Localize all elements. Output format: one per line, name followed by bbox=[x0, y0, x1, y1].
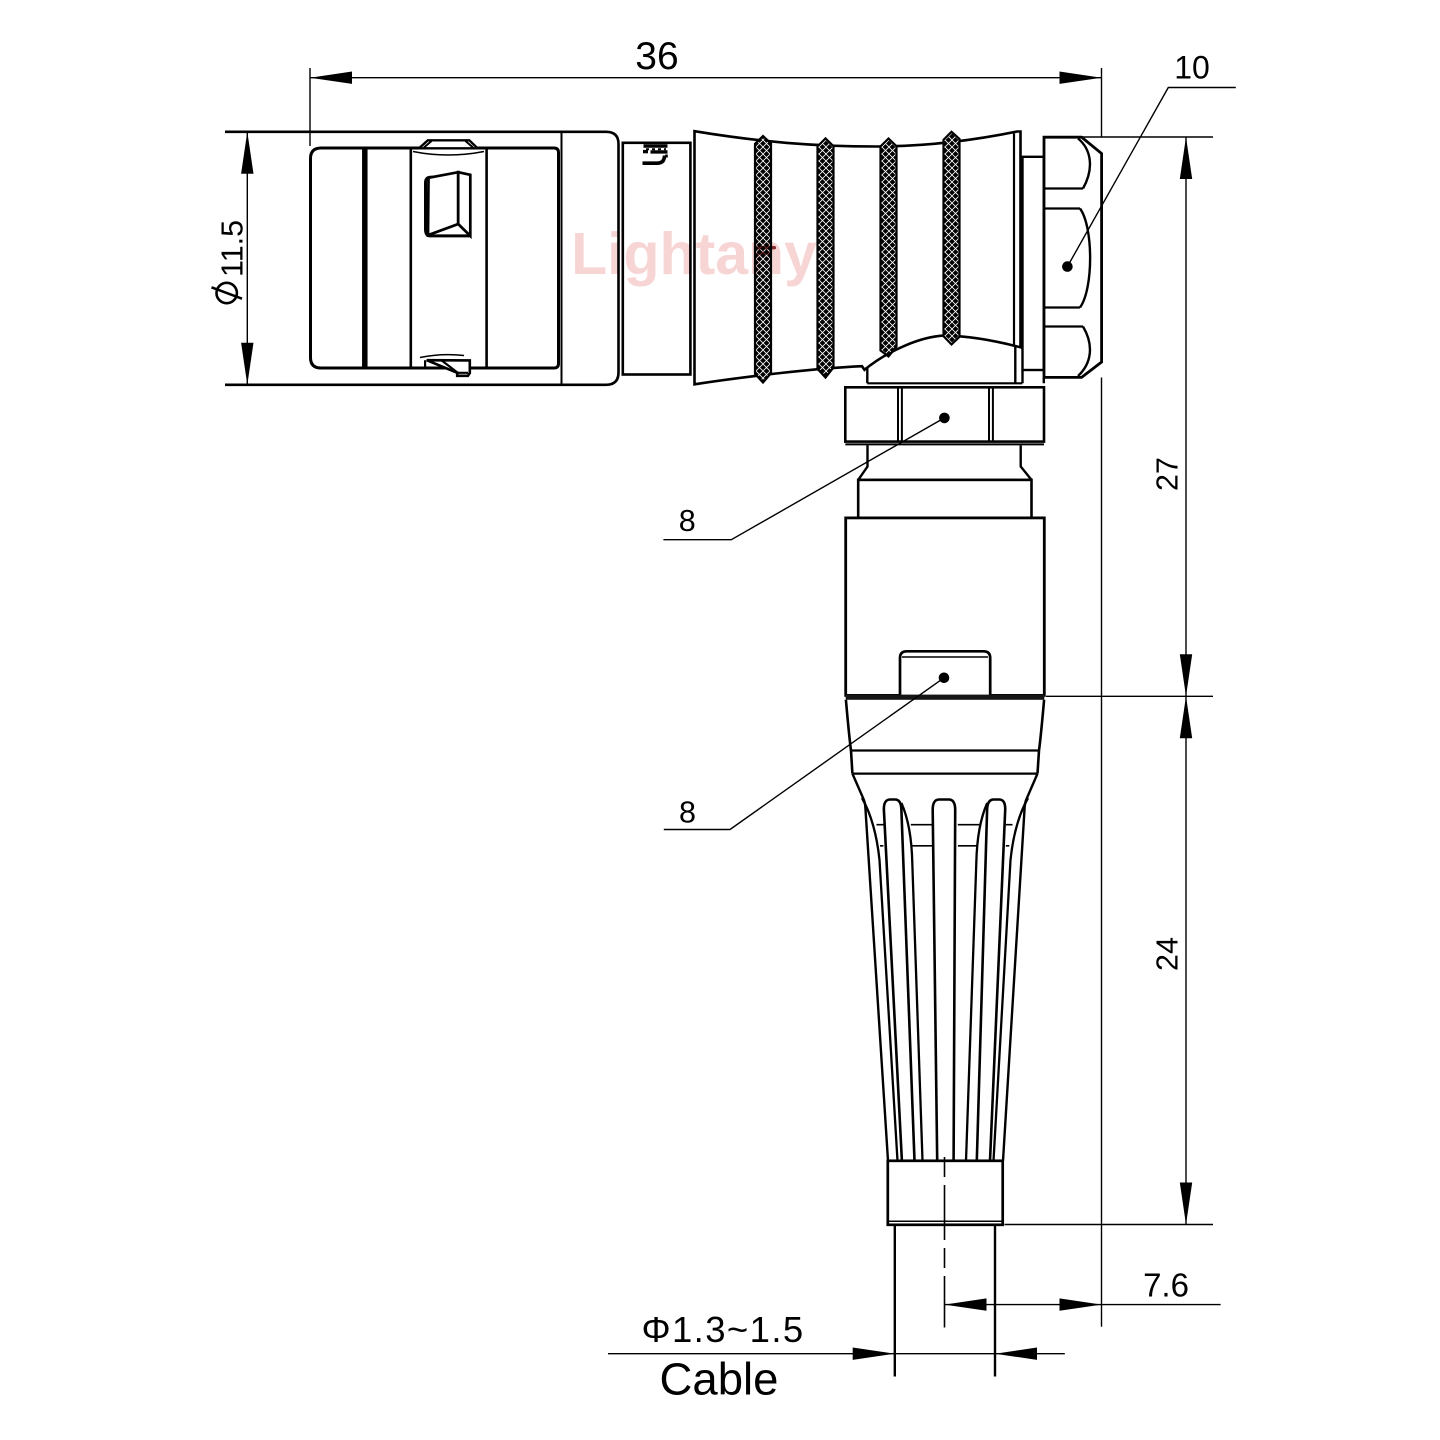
svg-text:11.5: 11.5 bbox=[216, 220, 250, 277]
svg-text:8: 8 bbox=[679, 796, 696, 830]
svg-text:Φ1.3~1.5: Φ1.3~1.5 bbox=[641, 1309, 804, 1350]
svg-text:36: 36 bbox=[635, 35, 678, 78]
svg-text:24: 24 bbox=[1151, 937, 1185, 971]
svg-text:Lightany: Lightany bbox=[571, 221, 817, 287]
svg-text:Cable: Cable bbox=[660, 1354, 779, 1405]
svg-text:27: 27 bbox=[1151, 457, 1185, 491]
svg-text:10: 10 bbox=[1174, 49, 1210, 85]
svg-text:8: 8 bbox=[679, 504, 696, 538]
svg-text:7.6: 7.6 bbox=[1143, 1267, 1189, 1304]
